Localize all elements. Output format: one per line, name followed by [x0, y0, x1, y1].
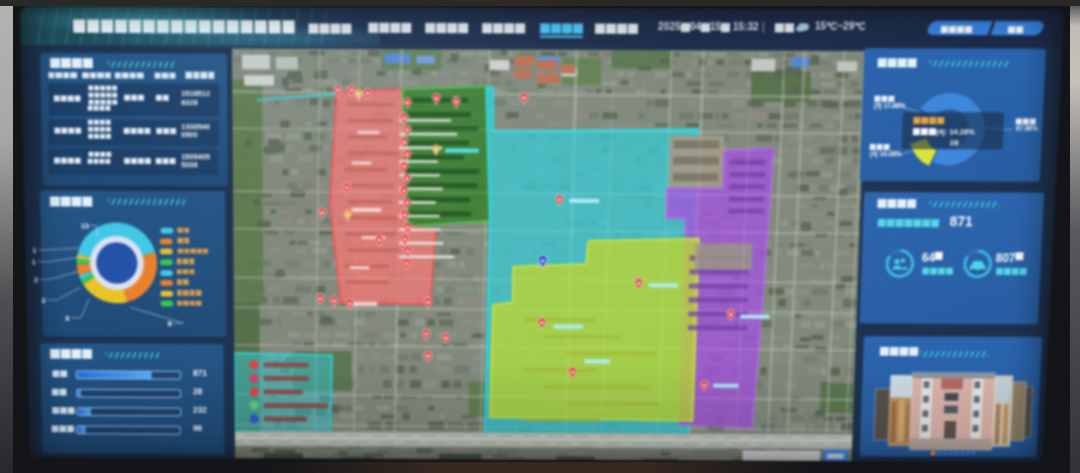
svg-text:1: 1	[31, 257, 36, 266]
svg-text:3: 3	[65, 314, 70, 323]
svg-text:8: 8	[167, 319, 172, 328]
svg-text:11: 11	[81, 221, 90, 230]
svg-text:2: 2	[34, 275, 39, 284]
svg-text:1: 1	[32, 246, 37, 255]
svg-text:3: 3	[41, 296, 46, 305]
